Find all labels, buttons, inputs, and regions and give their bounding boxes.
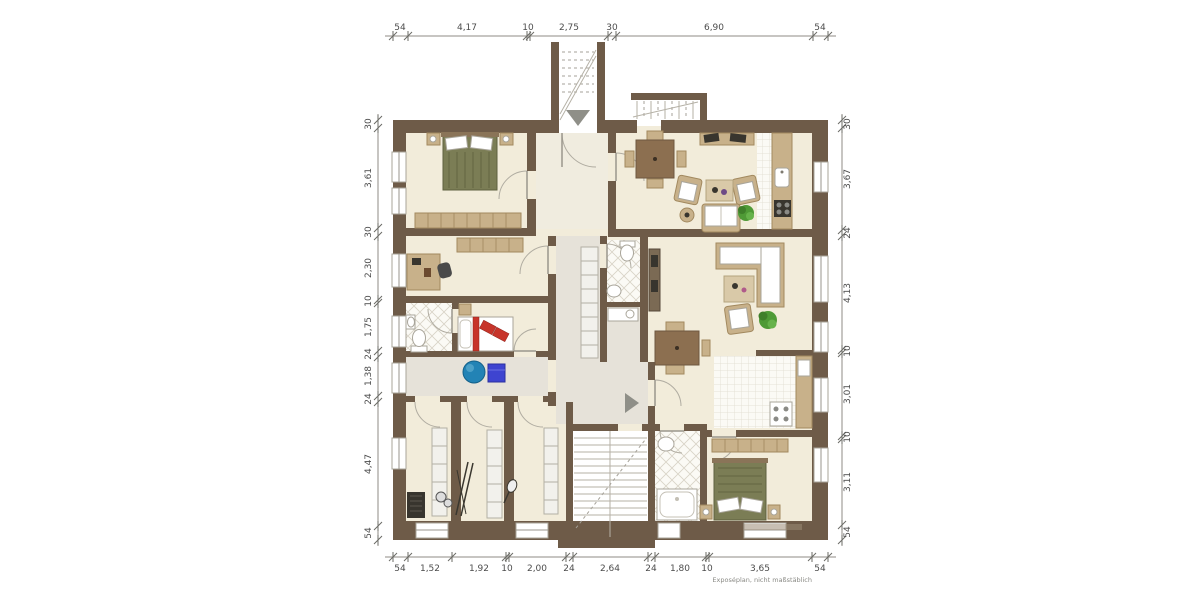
dim-label: 3,65 xyxy=(750,564,770,574)
single-bed xyxy=(458,317,513,351)
floor-vestibule xyxy=(600,362,648,424)
stove xyxy=(774,200,791,217)
dim-label: 30 xyxy=(364,118,374,130)
dim-top: 54 4,17 10 2,75 30 6,90 54 xyxy=(385,23,836,41)
dim-left: 30 3,61 30 2,30 10 1,75 24 1,38 24 4,47 … xyxy=(364,114,382,546)
stove xyxy=(770,402,792,426)
dim-label: 2,64 xyxy=(600,564,620,574)
floor-kitchen-top xyxy=(757,133,772,229)
dim-label: 4,17 xyxy=(457,23,477,33)
kitchen-sink xyxy=(798,360,810,376)
window xyxy=(814,378,828,412)
dim-label: 54 xyxy=(394,23,406,33)
dim-label: 2,00 xyxy=(527,564,547,574)
dim-label: 54 xyxy=(843,526,853,538)
floor-plan-svg: 54 4,17 10 2,75 30 6,90 54 54 1,52 1,92 … xyxy=(0,0,1200,600)
desk xyxy=(407,254,440,290)
window xyxy=(416,523,448,538)
floor-entry-hall xyxy=(536,133,608,229)
window xyxy=(392,188,406,214)
dim-label: 10 xyxy=(522,23,534,33)
shelf-unit xyxy=(487,430,502,518)
armchair xyxy=(732,175,761,205)
window xyxy=(516,523,548,538)
upper-stair xyxy=(631,100,700,120)
dresser xyxy=(712,439,788,452)
dim-label: 3,01 xyxy=(843,384,853,404)
armchair xyxy=(674,175,703,205)
dim-label: 1,52 xyxy=(420,564,440,574)
coffee-table xyxy=(724,276,754,302)
dim-label: 30 xyxy=(843,118,853,130)
dim-label: 24 xyxy=(364,348,374,360)
coffee-table xyxy=(706,180,733,201)
dim-label: 54 xyxy=(814,23,826,33)
kitchen-top xyxy=(772,133,792,229)
dim-right: 30 3,67 24 4,13 10 3,01 10 3,11 54 xyxy=(838,114,853,546)
dim-label: 24 xyxy=(364,393,374,405)
dim-label: 24 xyxy=(645,564,657,574)
dim-label: 10 xyxy=(843,431,853,443)
sink xyxy=(607,285,621,297)
dim-label: 54 xyxy=(394,564,406,574)
dim-label: 30 xyxy=(364,226,374,238)
dim-label: 10 xyxy=(364,295,374,307)
dim-label: 54 xyxy=(364,527,374,539)
dim-label: 4,47 xyxy=(364,454,374,474)
wardrobe xyxy=(457,238,523,252)
dim-label: 24 xyxy=(563,564,575,574)
dim-label: 1,80 xyxy=(670,564,690,574)
dim-label: 10 xyxy=(701,564,713,574)
shelf-unit xyxy=(544,428,558,514)
gym-ball xyxy=(463,361,485,383)
window xyxy=(814,256,828,302)
dim-label: 1,75 xyxy=(364,317,374,337)
dim-label: 4,13 xyxy=(843,283,853,303)
dim-label: 1,92 xyxy=(469,564,489,574)
sofa xyxy=(702,204,740,232)
nightstand xyxy=(459,304,471,315)
dim-label: 1,38 xyxy=(364,366,374,386)
desk-item xyxy=(424,268,431,277)
desk-item xyxy=(412,258,421,265)
dim-label: 2,30 xyxy=(364,258,374,278)
window xyxy=(392,152,406,182)
window xyxy=(392,438,406,469)
dim-label: 2,75 xyxy=(559,23,579,33)
plant xyxy=(738,205,754,221)
bathtub xyxy=(657,489,697,520)
dim-label: 54 xyxy=(814,564,826,574)
toilet xyxy=(621,245,634,261)
double-bed xyxy=(441,132,499,190)
toilet xyxy=(413,330,426,347)
sink xyxy=(658,437,674,451)
dim-bottom: 54 1,52 1,92 10 2,00 24 2,64 24 1,80 10 … xyxy=(385,552,836,584)
window xyxy=(392,316,406,347)
wardrobe xyxy=(415,213,521,228)
blue-box xyxy=(488,364,505,382)
dim-label: 24 xyxy=(843,227,853,239)
dim-label: 30 xyxy=(606,23,618,33)
back-door xyxy=(658,523,680,538)
dim-label: 10 xyxy=(843,345,853,357)
dim-label: 3,11 xyxy=(843,472,853,492)
armchair xyxy=(724,303,754,334)
floor-plan-page: 54 4,17 10 2,75 30 6,90 54 54 1,52 1,92 … xyxy=(0,0,1200,600)
window xyxy=(814,322,828,352)
sideboard xyxy=(700,133,754,145)
dim-label: 6,90 xyxy=(704,23,724,33)
window xyxy=(814,162,828,192)
window xyxy=(392,254,406,287)
dim-label: 3,61 xyxy=(364,168,374,188)
dim-label: 10 xyxy=(501,564,513,574)
dim-label: 3,67 xyxy=(843,169,853,189)
footnote: Exposéplan, nicht maßstäblich xyxy=(712,576,812,584)
window xyxy=(392,363,406,393)
double-bed xyxy=(712,458,768,520)
window xyxy=(814,448,828,482)
watermark xyxy=(744,524,802,530)
